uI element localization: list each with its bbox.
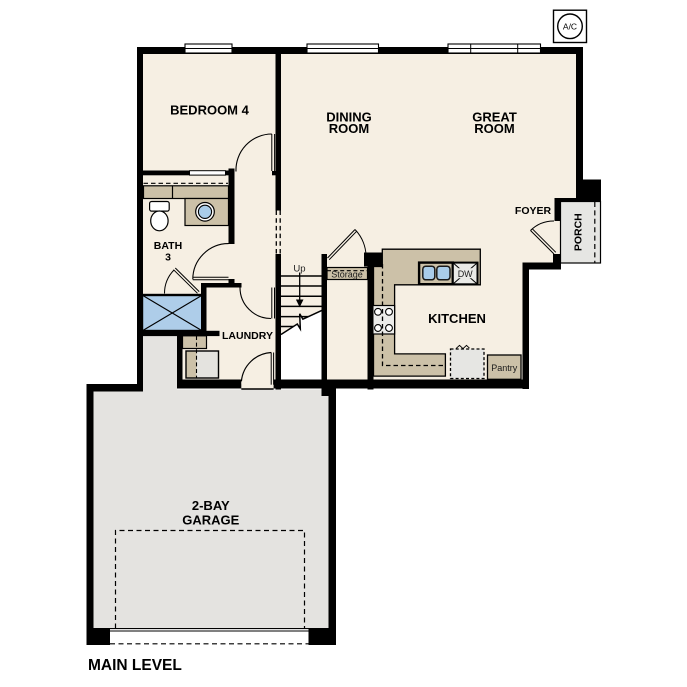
svg-text:FOYER: FOYER: [515, 205, 552, 217]
svg-text:3: 3: [165, 251, 171, 263]
svg-text:GARAGE: GARAGE: [182, 512, 239, 527]
svg-text:LAUNDRY: LAUNDRY: [222, 330, 273, 342]
svg-text:Up: Up: [293, 264, 305, 275]
svg-text:PORCH: PORCH: [572, 213, 584, 251]
svg-text:DW: DW: [458, 269, 473, 279]
svg-text:MAIN LEVEL: MAIN LEVEL: [88, 657, 182, 674]
svg-text:BEDROOM 4: BEDROOM 4: [170, 103, 250, 118]
svg-text:Pantry: Pantry: [491, 363, 518, 373]
svg-text:A/C: A/C: [563, 21, 577, 31]
svg-text:KITCHEN: KITCHEN: [428, 311, 486, 326]
svg-text:ROOM: ROOM: [474, 121, 514, 136]
svg-text:BATH: BATH: [154, 240, 182, 252]
svg-text:2-BAY: 2-BAY: [192, 498, 230, 513]
svg-text:ROOM: ROOM: [329, 121, 369, 136]
